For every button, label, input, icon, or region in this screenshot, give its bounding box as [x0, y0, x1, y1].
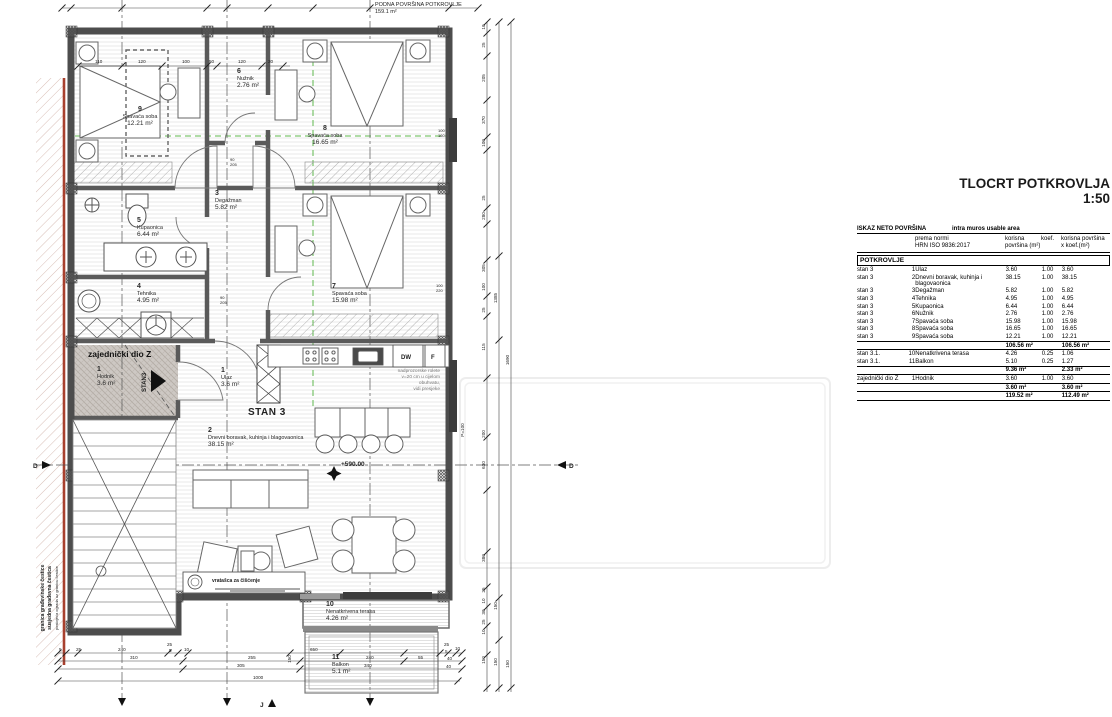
boundary-notes: granica građevinske čestice susjedna gra… — [40, 564, 59, 631]
svg-text:granica građevinske čestice: granica građevinske čestice — [40, 564, 46, 631]
cell-n — [901, 392, 915, 401]
drawing-title-text: TLOCRT POTKROVLJA — [900, 176, 1110, 191]
room-label-degazman: 3 Degažman 5.82 m² — [215, 190, 242, 212]
svg-text:1690: 1690 — [505, 354, 510, 365]
col-norm: prema normi HRN ISO 9836:2017 — [915, 236, 1005, 251]
cell-d — [915, 366, 1005, 375]
cell-a: 3.60 — [1006, 375, 1042, 384]
cell-g: stan 3.1. — [857, 358, 901, 366]
cell-n: 3 — [901, 288, 915, 296]
svg-text:5: 5 — [169, 648, 172, 653]
svg-text:150: 150 — [505, 660, 510, 668]
floor-area-note-line2: 159.1 m² — [375, 9, 462, 16]
svg-text:280: 280 — [481, 212, 486, 220]
room-label-balkon: 11 Balkon 5.1 m² — [332, 654, 350, 676]
cell-a: 16.65 — [1006, 326, 1042, 334]
header-left: ISKAZ NETO POVRŠINA — [857, 226, 952, 232]
cell-a: 4.26 — [1006, 350, 1042, 358]
cell-x: 3.60 — [1062, 267, 1110, 275]
apartment-label: STAN 3 — [248, 407, 286, 418]
svg-text:10: 10 — [184, 647, 190, 652]
cell-x: 2.33 m² — [1062, 366, 1110, 375]
cell-g: stan 3 — [857, 288, 901, 296]
cell-d: Dnevni boravak, kuhinja i blagovaonica — [915, 274, 1005, 288]
common-part-heading: zajednički dio Z — [88, 349, 151, 359]
table-row: zajednički dio Z1Hodnik3.601.003.60 — [857, 375, 1110, 384]
svg-text:240: 240 — [366, 655, 374, 660]
room-label-spavaca-8: 8 Spavaća soba 16.65 m² — [295, 125, 355, 147]
svg-text:40: 40 — [447, 656, 453, 661]
cell-n: 10 — [901, 350, 915, 358]
cell-g: stan 3.1. — [857, 350, 901, 358]
fridge-label: F — [431, 355, 435, 361]
cell-d — [915, 341, 1005, 350]
svg-text:P=100: P=100 — [460, 423, 465, 437]
cell-d — [915, 392, 1005, 401]
subtotal-row: 3.60 m²3.60 m² — [857, 383, 1110, 392]
table-row: stan 3.1.10Nenatkrivena terasa4.260.251.… — [857, 350, 1110, 358]
cell-a: 3.60 m² — [1006, 383, 1042, 392]
table-row: stan 32Dnevni boravak, kuhinja i blagova… — [857, 274, 1110, 288]
room-label-hodnik: 1 Hodnik 3.6 m² — [97, 366, 115, 388]
area-table-grid: stan 31Ulaz3.601.003.60stan 32Dnevni bor… — [857, 267, 1110, 402]
room-label-spavaca-9: 9 Spavaća soba 12.21 m² — [108, 106, 172, 128]
svg-text:100: 100 — [481, 283, 486, 291]
header-right: intra muros usable area — [952, 226, 1110, 232]
area-table-body: stan 31Ulaz3.601.003.60stan 32Dnevni bor… — [857, 267, 1110, 401]
cell-g: zajednički dio Z — [857, 375, 901, 384]
svg-text:220: 220 — [436, 288, 443, 293]
svg-text:5: 5 — [59, 647, 62, 652]
cell-k: 1.00 — [1042, 274, 1062, 288]
cell-n: 9 — [901, 333, 915, 341]
svg-text:postojeća ograda uz granicu če: postojeća ograda uz granicu čestice — [54, 565, 59, 630]
cell-k — [1042, 383, 1062, 392]
cell-d: Spavaća soba — [915, 333, 1005, 341]
cell-k — [1042, 341, 1062, 350]
svg-text:115: 115 — [481, 343, 486, 351]
svg-text:1385: 1385 — [493, 292, 498, 303]
table-row: stan 36Nužnik2.761.002.76 — [857, 310, 1110, 318]
svg-text:305: 305 — [237, 663, 245, 668]
cell-k: 1.00 — [1042, 318, 1062, 326]
elevation-label: +590.00 — [341, 461, 365, 468]
floor-plan-sheet: DW F vratašca za čišćenje +590.00 STAN3 — [0, 0, 1112, 717]
cell-k: 0.25 — [1042, 350, 1062, 358]
room-label-tehnika: 4 Tehnika 4.95 m² — [137, 283, 159, 305]
subtotal-row: 106.56 m²106.56 m² — [857, 341, 1110, 350]
cell-d: Nužnik — [915, 310, 1005, 318]
room-label-terasa: 10 Nenatkrivena terasa 4.26 m² — [326, 601, 375, 623]
cell-a: 106.56 m² — [1006, 341, 1042, 350]
cell-d: Spavaća soba — [915, 318, 1005, 326]
dishwasher-label: DW — [401, 355, 411, 361]
table-row: stan 39Spavaća soba12.211.0012.21 — [857, 333, 1110, 341]
room-label-ulaz: 1 Ulaz 3.6 m² — [221, 367, 239, 389]
cell-x: 6.44 — [1062, 303, 1110, 311]
svg-text:25: 25 — [444, 642, 450, 647]
svg-text:25: 25 — [481, 42, 486, 48]
cell-x: 15.98 — [1062, 318, 1110, 326]
cell-d: Spavaća soba — [915, 326, 1005, 334]
area-table-header: ISKAZ NETO POVRŠINA intra muros usable a… — [857, 226, 1110, 234]
total-row: 119.52 m²112.49 m² — [857, 392, 1110, 401]
cell-d: Hodnik — [915, 375, 1005, 384]
shutter-note: nadprozorske rolete v=20 cm u cijelom ob… — [366, 369, 440, 393]
svg-text:50: 50 — [209, 59, 215, 64]
svg-text:25: 25 — [481, 307, 486, 313]
cell-k: 1.00 — [1042, 303, 1062, 311]
svg-text:150: 150 — [287, 655, 292, 663]
cell-k: 0.25 — [1042, 358, 1062, 366]
drawing-title: TLOCRT POTKROVLJA 1:50 — [900, 176, 1110, 206]
svg-text:10: 10 — [481, 629, 486, 635]
svg-text:310: 310 — [130, 655, 138, 660]
cell-x: 16.65 — [1062, 326, 1110, 334]
svg-text:380: 380 — [481, 554, 486, 562]
subtotal-row: 9.36 m²2.33 m² — [857, 366, 1110, 375]
cell-x: 1.06 — [1062, 350, 1110, 358]
cell-x: 112.49 m² — [1062, 392, 1110, 401]
cell-a: 38.15 — [1006, 274, 1042, 288]
cell-n: 11 — [901, 358, 915, 366]
cleaning-note: vratašca za čišćenje — [212, 578, 260, 584]
svg-text:10: 10 — [455, 646, 461, 651]
cell-x: 1.27 — [1062, 358, 1110, 366]
cell-k — [1042, 366, 1062, 375]
cell-g: stan 3 — [857, 318, 901, 326]
svg-text:110: 110 — [95, 59, 103, 64]
cell-g — [857, 383, 901, 392]
cell-g: stan 3 — [857, 303, 901, 311]
svg-text:susjedna građevna čestica: susjedna građevna čestica — [47, 566, 53, 630]
cell-n — [901, 383, 915, 392]
cell-a: 6.44 — [1006, 303, 1042, 311]
cell-a: 119.52 m² — [1006, 392, 1042, 401]
table-row: stan 35Kupaonica6.441.006.44 — [857, 303, 1110, 311]
room-label-spavaca-7: 7 Spavaća soba 15.98 m² — [332, 283, 367, 305]
svg-text:55: 55 — [418, 655, 424, 660]
svg-text:5: 5 — [445, 649, 448, 654]
svg-text:STAN3: STAN3 — [142, 372, 148, 392]
cell-a: 4.95 — [1006, 295, 1042, 303]
cell-k: 1.00 — [1042, 333, 1062, 341]
col-koef: koef. — [1041, 236, 1061, 251]
cell-n: 7 — [901, 318, 915, 326]
svg-text:100: 100 — [182, 59, 190, 64]
svg-text:25: 25 — [481, 619, 486, 625]
cell-n: 5 — [901, 303, 915, 311]
svg-text:1000: 1000 — [253, 675, 264, 680]
cell-x: 3.60 — [1062, 375, 1110, 384]
cell-n: 1 — [901, 267, 915, 275]
cell-a: 5.10 — [1006, 358, 1042, 366]
cell-k: 1.00 — [1042, 310, 1062, 318]
cell-g: stan 3 — [857, 267, 901, 275]
svg-text:370: 370 — [481, 116, 486, 124]
cell-g: stan 3 — [857, 333, 901, 341]
svg-text:650: 650 — [310, 647, 318, 652]
svg-text:40: 40 — [446, 664, 452, 669]
watermark-box — [460, 378, 830, 568]
table-row: stan 33Degažman5.821.005.82 — [857, 288, 1110, 296]
cell-n — [901, 341, 915, 350]
cell-d: Balkon — [915, 358, 1005, 366]
cell-x: 106.56 m² — [1062, 341, 1110, 350]
section-band: POTKROVLJE — [857, 255, 1110, 266]
col-area: korisna površina (m²) — [1005, 236, 1041, 251]
svg-text:120: 120 — [138, 59, 146, 64]
svg-text:20: 20 — [268, 59, 274, 64]
cell-n: 6 — [901, 310, 915, 318]
cell-d: Ulaz — [915, 267, 1005, 275]
floor-area-note: PODNA POVRŠINA POTKROVLJE 159.1 m² — [375, 2, 462, 16]
svg-text:305: 305 — [481, 264, 486, 272]
cell-d: Degažman — [915, 288, 1005, 296]
svg-text:150: 150 — [493, 658, 498, 666]
cell-x: 12.21 — [1062, 333, 1110, 341]
cell-a: 15.98 — [1006, 318, 1042, 326]
cell-x: 4.95 — [1062, 295, 1110, 303]
room-label-dnevni: 2 Dnevni boravak, kuhinja i blagovaonica… — [208, 427, 408, 449]
cell-a: 9.36 m² — [1006, 366, 1042, 375]
cell-n — [901, 366, 915, 375]
cell-d — [915, 383, 1005, 392]
svg-text:205: 205 — [220, 300, 227, 305]
table-row: stan 38Spavaća soba16.651.0016.65 — [857, 326, 1110, 334]
svg-text:25: 25 — [481, 587, 486, 593]
cell-x: 2.76 — [1062, 310, 1110, 318]
svg-text:240: 240 — [118, 647, 126, 652]
svg-text:630: 630 — [481, 461, 486, 469]
cell-x: 3.60 m² — [1062, 383, 1110, 392]
cell-k: 1.00 — [1042, 288, 1062, 296]
cell-g: stan 3 — [857, 274, 901, 288]
cell-d: Nenatkrivena terasa — [915, 350, 1005, 358]
cell-k: 1.00 — [1042, 375, 1062, 384]
svg-text:205: 205 — [230, 162, 237, 167]
cell-x: 38.15 — [1062, 274, 1110, 288]
svg-text:255: 255 — [248, 655, 256, 660]
col-areakoef: korisna površina x koef.(m²) — [1061, 236, 1109, 251]
cell-g — [857, 392, 901, 401]
cell-a: 2.76 — [1006, 310, 1042, 318]
svg-text:100: 100 — [481, 139, 486, 147]
table-row: stan 37Spavaća soba15.981.0015.98 — [857, 318, 1110, 326]
room-label-kupaonica: 5 Kupaonica 6.44 m² — [137, 217, 163, 239]
svg-text:160: 160 — [438, 133, 445, 138]
cell-a: 5.82 — [1006, 288, 1042, 296]
cell-x: 5.82 — [1062, 288, 1110, 296]
cell-k — [1042, 392, 1062, 401]
cell-g: stan 3 — [857, 310, 901, 318]
table-row: stan 3.1.11Balkon5.100.251.27 — [857, 358, 1110, 366]
table-row: stan 31Ulaz3.601.003.60 — [857, 267, 1110, 275]
cell-n: 2 — [901, 274, 915, 288]
cell-g — [857, 366, 901, 375]
svg-text:150: 150 — [481, 656, 486, 664]
svg-text:J: J — [260, 702, 264, 709]
cell-n: 1 — [901, 375, 915, 384]
cell-a: 3.60 — [1006, 267, 1042, 275]
svg-text:120: 120 — [238, 59, 246, 64]
svg-text:10: 10 — [481, 24, 486, 30]
svg-text:340: 340 — [364, 663, 372, 668]
svg-text:200: 200 — [481, 430, 486, 438]
cell-n: 8 — [901, 326, 915, 334]
table-row: stan 34Tehnika4.951.004.95 — [857, 295, 1110, 303]
cell-k: 1.00 — [1042, 326, 1062, 334]
svg-text:25: 25 — [481, 195, 486, 201]
cell-g — [857, 341, 901, 350]
cell-g: stan 3 — [857, 295, 901, 303]
cell-k: 1.00 — [1042, 267, 1062, 275]
svg-text:150: 150 — [493, 602, 498, 610]
area-table-columns: prema normi HRN ISO 9836:2017 korisna po… — [857, 234, 1110, 253]
area-table: ISKAZ NETO POVRŠINA intra muros usable a… — [857, 226, 1110, 401]
cell-k: 1.00 — [1042, 295, 1062, 303]
cell-d: Kupaonica — [915, 303, 1005, 311]
cell-n: 4 — [901, 295, 915, 303]
svg-text:D: D — [33, 463, 38, 470]
svg-text:30: 30 — [481, 609, 486, 615]
cell-a: 12.21 — [1006, 333, 1042, 341]
svg-text:25: 25 — [76, 647, 82, 652]
floor-area-note-line1: PODNA POVRŠINA POTKROVLJE — [375, 2, 462, 9]
room-label-nuznik: 6 Nužnik 2.76 m² — [237, 68, 259, 90]
svg-text:205: 205 — [481, 74, 486, 82]
svg-text:10: 10 — [481, 598, 486, 604]
svg-text:D: D — [569, 463, 574, 470]
svg-text:25: 25 — [167, 642, 173, 647]
cell-g: stan 3 — [857, 326, 901, 334]
drawing-scale: 1:50 — [900, 191, 1110, 206]
cell-d: Tehnika — [915, 295, 1005, 303]
